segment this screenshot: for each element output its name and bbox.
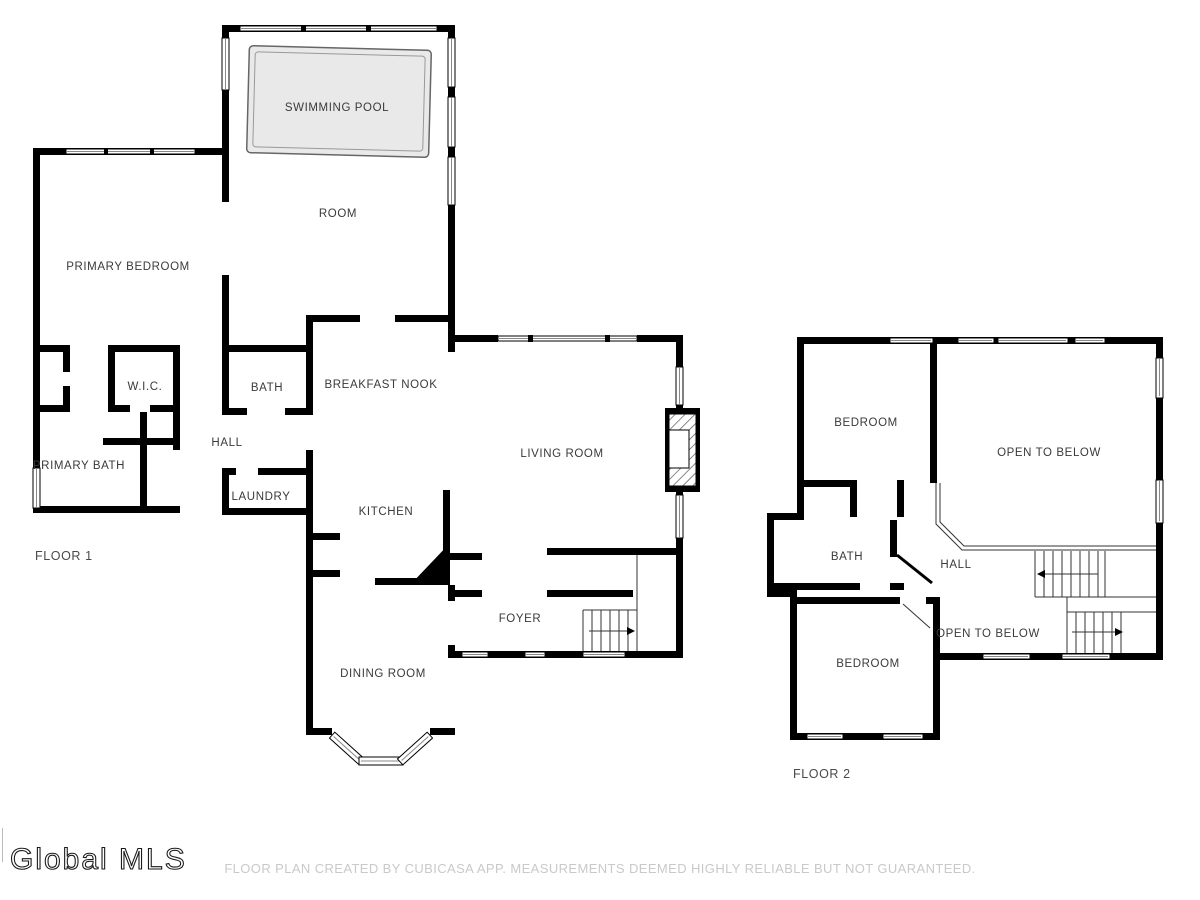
label-laundry: LAUNDRY	[232, 491, 291, 503]
label-wic: W.I.C.	[128, 381, 163, 393]
label-dining-room: DINING ROOM	[340, 668, 426, 680]
floor2-plan	[767, 337, 1163, 740]
floor1-door-openings	[221, 202, 230, 275]
label-bath-floor1: BATH	[251, 382, 283, 394]
floor2-title: FLOOR 2	[793, 767, 851, 781]
bay-window	[329, 732, 432, 765]
label-kitchen: KITCHEN	[359, 506, 414, 518]
floor1-stairs	[583, 555, 637, 651]
floor2-walls	[767, 337, 1163, 740]
floor2-stairs	[1035, 551, 1156, 653]
stairs-lower-arrow	[1115, 628, 1123, 636]
label-foyer: FOYER	[499, 613, 542, 625]
label-breakfast-nook: BREAKFAST NOOK	[325, 379, 438, 391]
floor1-plan	[33, 25, 700, 765]
label-hall-floor1: HALL	[211, 437, 242, 449]
label-bedroom-top: BEDROOM	[834, 417, 898, 429]
label-living-room: LIVING ROOM	[520, 448, 603, 460]
fireplace	[665, 408, 700, 492]
bedroom-door-swing	[903, 604, 930, 628]
label-bedroom-bottom: BEDROOM	[836, 658, 900, 670]
label-bath-floor2: BATH	[831, 551, 863, 563]
floor2-windows	[807, 338, 1163, 739]
label-primary-bath: PRIMARY BATH	[33, 460, 125, 472]
floor-plan-page: { "page": { "background": "#ffffff", "wa…	[0, 0, 1200, 900]
label-primary-bedroom: PRIMARY BEDROOM	[66, 261, 190, 273]
page-edge-line	[2, 828, 3, 862]
stairs-down-arrow	[1037, 570, 1045, 578]
label-swimming-pool: SWIMMING POOL	[285, 102, 389, 114]
stairwell-railing	[936, 483, 1156, 550]
stairs-up-arrow	[627, 627, 635, 635]
label-open-to-below-top: OPEN TO BELOW	[997, 447, 1101, 459]
footer-disclaimer: FLOOR PLAN CREATED BY CUBICASA APP. MEAS…	[0, 861, 1200, 876]
bath-door	[897, 555, 932, 583]
label-open-to-below-bottom: OPEN TO BELOW	[936, 628, 1040, 640]
label-room: ROOM	[319, 208, 357, 220]
label-hall-floor2: HALL	[940, 559, 971, 571]
floor1-title: FLOOR 1	[35, 549, 93, 563]
